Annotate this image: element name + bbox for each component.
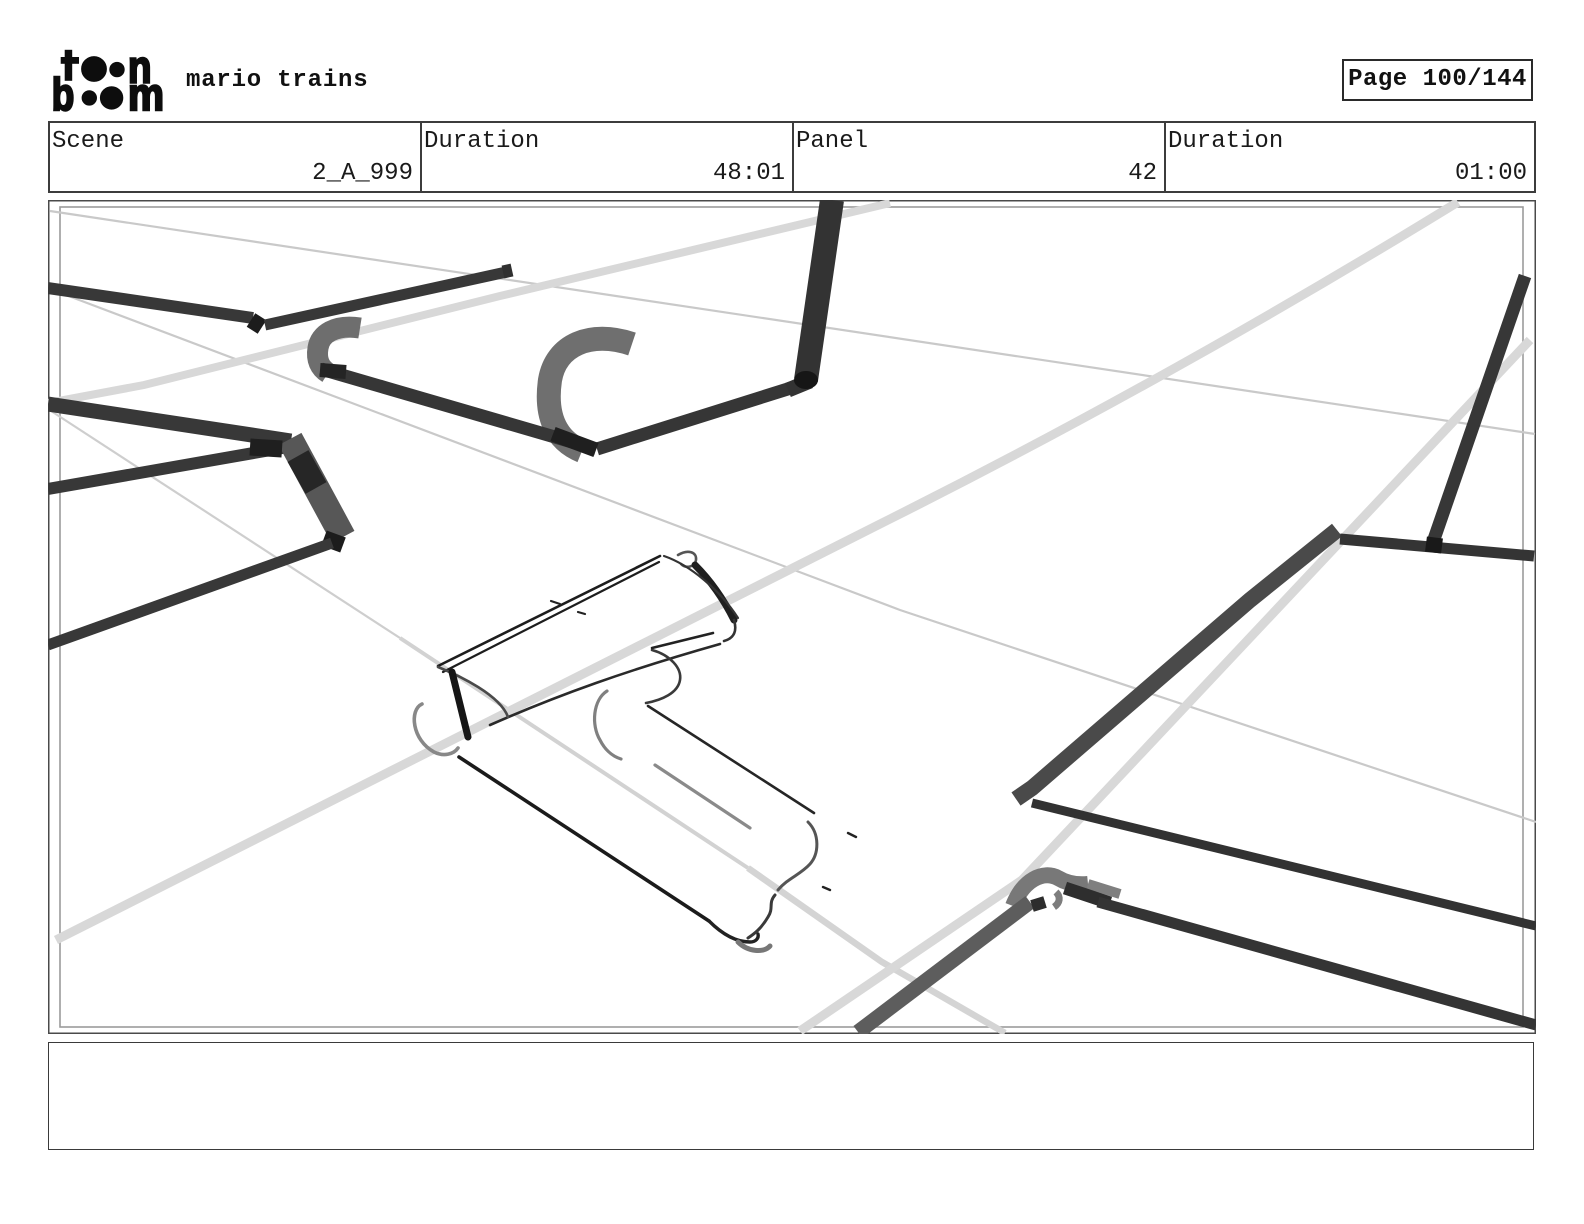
svg-text:m: m: [128, 69, 164, 115]
svg-text:b: b: [52, 69, 75, 115]
